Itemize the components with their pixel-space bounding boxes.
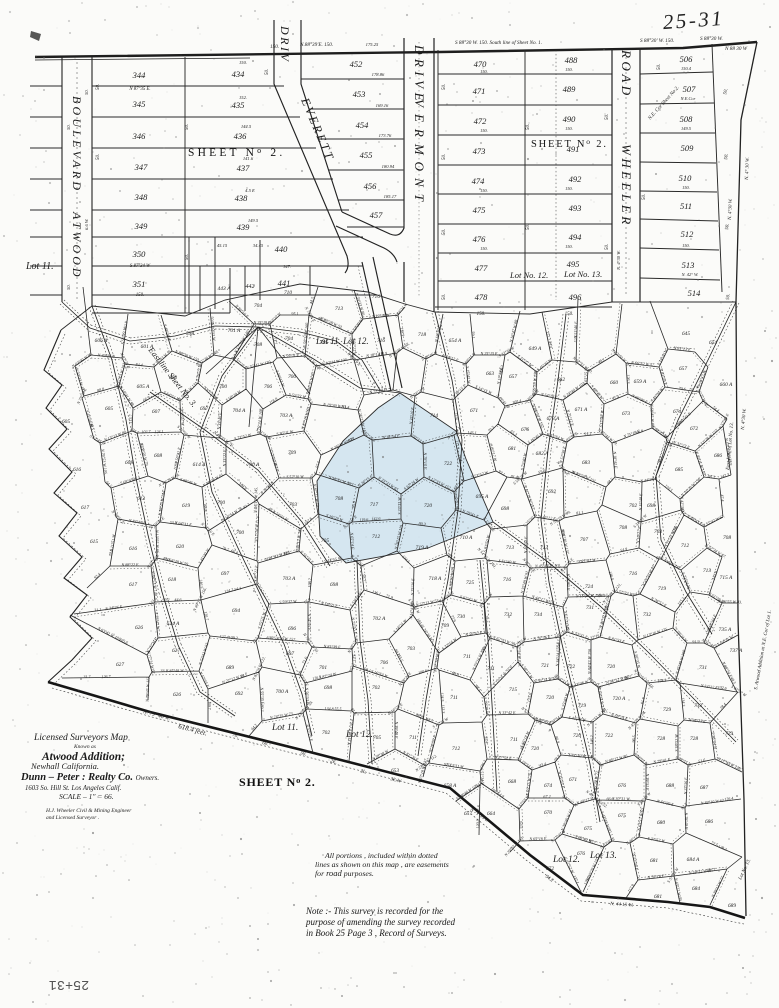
svg-text:710 A: 710 A <box>460 535 473 541</box>
svg-text:50.: 50. <box>96 154 101 160</box>
svg-text:96.5: 96.5 <box>631 735 636 742</box>
svg-text:84.4: 84.4 <box>135 362 143 368</box>
svg-text:50.: 50. <box>265 69 270 75</box>
svg-text:719 A: 719 A <box>416 545 429 551</box>
svg-text:473: 473 <box>473 146 486 156</box>
svg-text:50.: 50. <box>725 223 731 230</box>
svg-text:146.2: 146.2 <box>589 735 594 744</box>
svg-text:673: 673 <box>622 411 630 417</box>
svg-text:SHEET No 2.: SHEET No 2. <box>239 775 316 789</box>
svg-text:627: 627 <box>172 648 180 654</box>
svg-text:663: 663 <box>486 371 494 377</box>
svg-text:613: 613 <box>137 496 145 502</box>
svg-text:Lot 13.: Lot 13. <box>589 851 617 861</box>
svg-text:45.15: 45.15 <box>217 243 228 248</box>
svg-text:111.4: 111.4 <box>341 404 350 410</box>
svg-text:63.5: 63.5 <box>519 821 524 828</box>
svg-text:N 81°39 E: N 81°39 E <box>322 644 341 650</box>
svg-text:N. 42° W.: N. 42° W. <box>681 272 699 277</box>
svg-text:31.7: 31.7 <box>83 674 91 679</box>
svg-text:S 59°37 W: S 59°37 W <box>279 599 297 605</box>
svg-text:124.1: 124.1 <box>154 429 163 434</box>
svg-text:Known as: Known as <box>73 744 96 750</box>
svg-text:711: 711 <box>487 666 495 672</box>
svg-text:N 65°16 E: N 65°16 E <box>528 836 547 842</box>
svg-text:711: 711 <box>463 654 471 660</box>
svg-text:N. 4° 30 W.: N. 4° 30 W. <box>745 157 751 181</box>
svg-text:697: 697 <box>221 571 229 577</box>
svg-text:708: 708 <box>619 525 627 531</box>
svg-text:705: 705 <box>373 735 381 741</box>
svg-text:706: 706 <box>380 660 388 666</box>
svg-text:47.4: 47.4 <box>720 494 726 502</box>
svg-text:676: 676 <box>618 783 626 789</box>
svg-text:N 25°19 E: N 25°19 E <box>252 320 271 325</box>
svg-text:150.: 150. <box>682 185 690 190</box>
svg-text:50.: 50. <box>66 284 71 290</box>
svg-text:702 A: 702 A <box>373 616 386 622</box>
svg-text:675: 675 <box>618 813 626 819</box>
svg-text:N 13°55 W 66.: N 13°55 W 66. <box>155 529 161 554</box>
svg-text:492: 492 <box>569 174 583 184</box>
svg-text:Newhall California.: Newhall California. <box>30 761 99 771</box>
svg-text:700: 700 <box>217 500 225 506</box>
svg-text:173.76: 173.76 <box>379 133 392 138</box>
svg-text:Lot 12.: Lot 12. <box>345 730 373 740</box>
svg-text:N 25°15 E: N 25°15 E <box>479 351 498 356</box>
svg-text:50.: 50. <box>642 194 647 200</box>
svg-text:436: 436 <box>234 131 248 141</box>
svg-text:DRIV: DRIV <box>278 25 292 63</box>
svg-text:711: 711 <box>450 695 458 701</box>
svg-text:Lot No. 13.: Lot No. 13. <box>563 269 602 279</box>
svg-text:112.3: 112.3 <box>441 704 447 713</box>
svg-text:58.8: 58.8 <box>555 642 560 649</box>
svg-text:695 A: 695 A <box>476 494 489 500</box>
svg-text:Lot No. 12.: Lot No. 12. <box>509 270 548 280</box>
svg-text:S 88°30 W.: S 88°30 W. <box>700 35 723 42</box>
svg-text:472: 472 <box>474 116 488 126</box>
svg-text:624 A: 624 A <box>167 621 180 627</box>
svg-text:DRIVE: DRIVE <box>412 44 427 105</box>
svg-text:88.8: 88.8 <box>203 504 209 512</box>
svg-text:N.88°39'E. 150.: N.88°39'E. 150. <box>299 41 333 48</box>
svg-text:697: 697 <box>200 406 208 412</box>
svg-text:608: 608 <box>125 460 133 466</box>
svg-text:N 88 30 W: N 88 30 W <box>724 46 748 52</box>
svg-text:purpose of amending the su: purpose of amending the survey recorded <box>305 917 456 927</box>
svg-text:684: 684 <box>692 886 700 892</box>
svg-text:N. 4°30 W.: N. 4°30 W. <box>616 250 621 271</box>
svg-text:127.4: 127.4 <box>219 634 228 640</box>
svg-text:50.: 50. <box>605 244 610 250</box>
svg-text:67.2: 67.2 <box>543 794 550 799</box>
svg-text:158.3: 158.3 <box>657 678 667 684</box>
svg-text:350: 350 <box>132 249 147 259</box>
svg-text:BOULEVARD: BOULEVARD <box>70 96 84 193</box>
svg-text:134.8: 134.8 <box>324 706 333 711</box>
svg-text:619: 619 <box>182 503 190 509</box>
svg-text:718 A: 718 A <box>429 576 442 582</box>
svg-text:136.4: 136.4 <box>349 719 355 728</box>
svg-text:720: 720 <box>573 733 581 739</box>
svg-text:720: 720 <box>607 664 615 670</box>
svg-text:169.16: 169.16 <box>376 103 389 108</box>
svg-text:729: 729 <box>663 707 671 713</box>
svg-text:50.: 50. <box>605 114 610 120</box>
svg-text:720: 720 <box>531 746 539 752</box>
svg-text:126.3: 126.3 <box>626 374 631 383</box>
svg-text:452: 452 <box>350 59 364 69</box>
svg-text:50.: 50. <box>724 153 730 160</box>
svg-text:N 39°51 E: N 39°51 E <box>645 772 650 791</box>
svg-text:605: 605 <box>62 419 70 425</box>
svg-text:649 A: 649 A <box>529 346 542 352</box>
svg-text:674: 674 <box>544 783 552 789</box>
svg-text:349: 349 <box>134 221 149 231</box>
svg-text:659 A: 659 A <box>634 379 647 385</box>
svg-text:All portions , included with: All portions , included within dotted <box>324 851 438 860</box>
svg-text:62.9: 62.9 <box>123 321 129 329</box>
svg-text:627: 627 <box>116 662 124 668</box>
svg-text:489: 489 <box>563 84 577 94</box>
svg-text:S 38°52 W: S 38°52 W <box>674 734 679 752</box>
svg-text:607: 607 <box>152 409 160 415</box>
svg-text:702: 702 <box>629 503 637 509</box>
svg-text:657: 657 <box>509 374 517 380</box>
svg-text:689: 689 <box>226 665 234 671</box>
svg-text:495: 495 <box>567 259 580 269</box>
svg-text:668: 668 <box>508 779 516 785</box>
svg-text:616: 616 <box>73 467 81 473</box>
svg-text:608: 608 <box>154 453 162 459</box>
svg-text:for road purposes.: for road purposes. <box>315 868 374 878</box>
svg-text:606 A: 606 A <box>95 338 108 344</box>
svg-text:150.: 150. <box>480 188 488 193</box>
svg-text:N 33°42 E: N 33°42 E <box>497 710 516 715</box>
svg-text:N 87°35 E.: N 87°35 E. <box>128 87 150 92</box>
svg-text:731: 731 <box>586 605 594 611</box>
svg-text:718: 718 <box>418 332 426 338</box>
svg-text:N 45°35 E: N 45°35 E <box>566 572 572 591</box>
svg-text:686: 686 <box>714 453 722 459</box>
svg-text:692: 692 <box>548 489 556 495</box>
svg-text:50.: 50. <box>84 89 89 95</box>
svg-text:N. 4°30 W.: N. 4°30 W. <box>728 198 734 221</box>
svg-text:682 A: 682 A <box>536 451 549 457</box>
svg-text:109.2: 109.2 <box>228 635 238 641</box>
svg-text:1603 So. Hill St. Los Angele: 1603 So. Hill St. Los Angeles Calif. <box>25 785 122 792</box>
svg-text:66.6: 66.6 <box>606 796 613 801</box>
svg-text:694: 694 <box>232 608 240 614</box>
svg-text:477: 477 <box>475 263 489 273</box>
svg-text:443 A: 443 A <box>218 285 232 292</box>
svg-text:722: 722 <box>567 664 575 670</box>
svg-text:728: 728 <box>690 736 698 742</box>
svg-text:150.: 150. <box>565 244 573 249</box>
svg-text:4.5 E: 4.5 E <box>245 188 255 193</box>
svg-text:44.6: 44.6 <box>174 597 182 602</box>
svg-text:75.5: 75.5 <box>484 615 489 622</box>
svg-text:55.5: 55.5 <box>334 706 341 711</box>
svg-text:VERMONT: VERMONT <box>412 99 427 208</box>
svg-text:475: 475 <box>473 205 486 215</box>
svg-text:50.: 50. <box>657 64 662 70</box>
svg-text:SHEET No 2.: SHEET No 2. <box>188 146 285 159</box>
svg-text:688: 688 <box>666 783 674 789</box>
svg-text:63.2: 63.2 <box>266 635 273 640</box>
svg-text:700: 700 <box>236 530 244 536</box>
svg-text:50.: 50. <box>526 224 531 230</box>
svg-text:729: 729 <box>725 731 733 737</box>
svg-text:496: 496 <box>569 292 583 302</box>
svg-text:716: 716 <box>503 577 511 583</box>
svg-text:511: 511 <box>680 201 692 211</box>
svg-text:716: 716 <box>629 571 637 577</box>
svg-text:732: 732 <box>643 612 651 618</box>
svg-text:S 85°48 W: S 85°48 W <box>166 668 184 673</box>
svg-text:703: 703 <box>654 529 662 535</box>
svg-text:50.: 50. <box>442 294 447 300</box>
svg-text:618: 618 <box>168 577 176 583</box>
svg-text:N 79°45 W 112.: N 79°45 W 112. <box>145 676 151 703</box>
svg-text:N 27°36 E: N 27°36 E <box>683 777 689 796</box>
svg-text:N 71°30 E: N 71°30 E <box>410 578 416 597</box>
svg-text:671 A: 671 A <box>575 407 588 413</box>
svg-text:626: 626 <box>135 625 143 631</box>
svg-text:80.3: 80.3 <box>418 521 426 527</box>
svg-text:S 88°30 W. 150. South line o: S 88°30 W. 150. South line of Sheet No. … <box>455 39 542 46</box>
svg-text:616: 616 <box>129 546 137 552</box>
svg-text:512: 512 <box>681 229 695 239</box>
svg-text:470: 470 <box>474 59 488 69</box>
svg-text:681: 681 <box>654 894 662 900</box>
svg-text:439: 439 <box>237 222 251 232</box>
svg-text:59.5: 59.5 <box>656 555 663 560</box>
svg-text:490: 490 <box>563 114 577 124</box>
svg-text:91.9: 91.9 <box>692 639 699 644</box>
svg-text:681: 681 <box>508 446 516 452</box>
svg-text:S 87°34 W: S 87°34 W <box>130 264 151 269</box>
svg-text:703: 703 <box>289 502 297 508</box>
svg-text:605 A: 605 A <box>137 384 150 390</box>
svg-text:69.7: 69.7 <box>207 702 212 710</box>
svg-text:438: 438 <box>235 193 249 203</box>
svg-text:513: 513 <box>682 260 695 270</box>
svg-text:144.5: 144.5 <box>241 124 252 129</box>
svg-text:S 88°30' W. 150.: S 88°30' W. 150. <box>640 37 674 44</box>
svg-text:50.: 50. <box>66 124 71 130</box>
svg-text:N 74°55 E: N 74°55 E <box>307 612 312 631</box>
svg-text:626: 626 <box>173 692 181 698</box>
svg-text:700: 700 <box>219 384 227 390</box>
svg-text:150.4: 150.4 <box>681 66 692 71</box>
svg-text:702: 702 <box>372 685 380 691</box>
svg-text:605: 605 <box>105 406 113 412</box>
svg-text:664: 664 <box>487 811 495 817</box>
svg-text:671: 671 <box>569 777 577 783</box>
svg-text:721: 721 <box>541 663 549 669</box>
svg-text:440: 440 <box>275 244 289 254</box>
svg-text:510: 510 <box>679 173 693 183</box>
svg-text:89.2: 89.2 <box>260 704 265 711</box>
svg-text:672: 672 <box>690 426 698 432</box>
svg-text:720 A: 720 A <box>613 696 626 702</box>
svg-text:687: 687 <box>700 785 708 791</box>
svg-text:709: 709 <box>441 623 449 629</box>
svg-text:N 78°49 E: N 78°49 E <box>684 811 690 830</box>
svg-text:N 45°44 W 110.: N 45°44 W 110. <box>534 563 561 569</box>
svg-text:708: 708 <box>254 342 262 348</box>
svg-text:703 A: 703 A <box>283 576 296 582</box>
svg-text:454: 454 <box>356 120 370 130</box>
svg-text:53.4: 53.4 <box>169 520 177 526</box>
svg-text:99.2: 99.2 <box>162 597 169 602</box>
svg-text:344: 344 <box>132 70 147 80</box>
svg-text:728: 728 <box>657 736 665 742</box>
svg-text:52.5: 52.5 <box>573 335 578 342</box>
svg-text:348: 348 <box>134 192 149 202</box>
svg-text:150.: 150. <box>480 246 488 251</box>
svg-text:671: 671 <box>470 408 478 414</box>
svg-text:645: 645 <box>682 331 690 337</box>
svg-text:434: 434 <box>232 69 246 79</box>
svg-text:514: 514 <box>688 288 702 298</box>
svg-text:180.94: 180.94 <box>382 164 395 169</box>
svg-text:673 A: 673 A <box>547 416 560 422</box>
svg-text:702: 702 <box>322 730 330 736</box>
svg-text:N 84°43 W 156.: N 84°43 W 156. <box>587 648 592 675</box>
svg-text:H.J. Wheeler Civil & Mining E: H.J. Wheeler Civil & Mining Engineer <box>45 808 132 814</box>
svg-text:508: 508 <box>680 114 694 124</box>
svg-text:701: 701 <box>319 665 327 671</box>
svg-text:ROAD: ROAD <box>619 49 634 99</box>
svg-text:712: 712 <box>372 534 380 540</box>
svg-text:683: 683 <box>582 460 590 466</box>
svg-text:58.5: 58.5 <box>598 593 605 598</box>
svg-text:457: 457 <box>370 210 384 220</box>
svg-text:185.17: 185.17 <box>384 194 397 199</box>
svg-text:91.2: 91.2 <box>584 431 592 437</box>
svg-text:WHEELER: WHEELER <box>619 144 634 228</box>
svg-text:730: 730 <box>457 614 465 620</box>
svg-text:686: 686 <box>705 819 713 825</box>
svg-text:700 A: 700 A <box>247 462 260 468</box>
svg-text:N 88°22 E: N 88°22 E <box>120 562 139 567</box>
svg-text:617: 617 <box>81 505 89 511</box>
svg-text:346: 346 <box>132 131 147 141</box>
svg-text:697: 697 <box>286 651 294 657</box>
svg-text:507: 507 <box>683 84 697 94</box>
svg-text:S 38°11 W: S 38°11 W <box>180 408 186 426</box>
svg-text:119.6: 119.6 <box>359 517 368 523</box>
svg-text:and Licensed Surveyor .: and Licensed Surveyor . <box>46 815 99 821</box>
svg-text:662: 662 <box>557 377 565 383</box>
svg-text:25+31: 25+31 <box>49 976 90 991</box>
svg-text:712: 712 <box>681 543 689 549</box>
svg-text:N 55°35 E: N 55°35 E <box>260 686 266 705</box>
svg-text:709: 709 <box>288 450 296 456</box>
svg-text:S 52°10 W: S 52°10 W <box>286 474 304 479</box>
svg-text:147.: 147. <box>283 264 291 269</box>
svg-text:715 A: 715 A <box>720 575 733 581</box>
svg-text:720: 720 <box>424 503 432 509</box>
svg-text:34.45: 34.45 <box>253 243 264 248</box>
svg-text:733: 733 <box>694 703 702 709</box>
svg-text:711: 711 <box>409 735 417 741</box>
svg-text:175.25: 175.25 <box>366 42 379 47</box>
svg-text:50.: 50. <box>185 124 190 130</box>
svg-text:435: 435 <box>232 100 245 110</box>
svg-text:708: 708 <box>723 535 731 541</box>
svg-text:714: 714 <box>430 413 438 419</box>
svg-text:455: 455 <box>360 150 373 160</box>
svg-text:351: 351 <box>132 279 146 289</box>
svg-text:684 A: 684 A <box>687 857 700 863</box>
svg-text:476: 476 <box>473 234 487 244</box>
svg-text:660 A: 660 A <box>720 382 733 388</box>
svg-text:134.3: 134.3 <box>681 697 687 707</box>
svg-text:178.86: 178.86 <box>372 72 385 77</box>
svg-text:Lot 11. Lot 12.: Lot 11. Lot 12. <box>315 336 369 346</box>
svg-text:120.3: 120.3 <box>475 819 480 828</box>
svg-text:705: 705 <box>321 538 329 544</box>
svg-text:509: 509 <box>681 143 695 153</box>
svg-text:735 A: 735 A <box>719 627 732 633</box>
svg-text:654: 654 <box>709 340 717 346</box>
svg-text:33.1: 33.1 <box>160 668 167 673</box>
svg-text:703: 703 <box>407 646 415 652</box>
svg-text:453: 453 <box>353 89 366 99</box>
svg-text:150.: 150. <box>682 243 690 248</box>
svg-text:692: 692 <box>235 691 243 697</box>
svg-text:725: 725 <box>466 580 474 586</box>
svg-text:737 A: 737 A <box>730 648 743 654</box>
svg-text:658 A: 658 A <box>444 783 457 789</box>
svg-text:N 33°22 E: N 33°22 E <box>222 449 227 468</box>
svg-text:126.7: 126.7 <box>101 674 111 679</box>
svg-text:50.: 50. <box>726 294 732 301</box>
svg-text:S 30°31 W: S 30°31 W <box>612 796 630 801</box>
svg-text:620: 620 <box>176 544 184 550</box>
svg-text:59.1: 59.1 <box>471 331 477 339</box>
svg-text:347: 347 <box>134 162 149 172</box>
svg-text:722: 722 <box>605 733 613 739</box>
svg-text:657: 657 <box>679 366 687 372</box>
svg-text:734: 734 <box>534 612 542 618</box>
svg-text:706: 706 <box>264 384 272 390</box>
svg-text:731: 731 <box>699 665 707 671</box>
svg-text:474: 474 <box>472 176 486 186</box>
svg-text:456: 456 <box>364 181 378 191</box>
svg-text:675: 675 <box>584 826 592 832</box>
svg-text:713: 713 <box>540 545 548 551</box>
svg-text:N 78°10 E: N 78°10 E <box>423 451 429 470</box>
svg-text:50.: 50. <box>96 84 101 90</box>
svg-text:696: 696 <box>288 626 296 632</box>
svg-text:700 A: 700 A <box>276 689 289 695</box>
svg-text:494: 494 <box>569 232 583 242</box>
svg-text:N 15°48 E: N 15°48 E <box>638 493 643 512</box>
svg-text:102.7: 102.7 <box>141 429 151 434</box>
svg-text:720: 720 <box>546 695 554 701</box>
svg-text:716: 716 <box>372 294 380 300</box>
svg-text:Lot 11.: Lot 11. <box>25 261 54 272</box>
svg-text:698: 698 <box>324 685 332 691</box>
svg-text:50.: 50. <box>442 229 447 235</box>
svg-text:471: 471 <box>473 86 486 96</box>
svg-text:Note :- This survey is rec: Note :- This survey is recorded for the <box>305 906 443 916</box>
